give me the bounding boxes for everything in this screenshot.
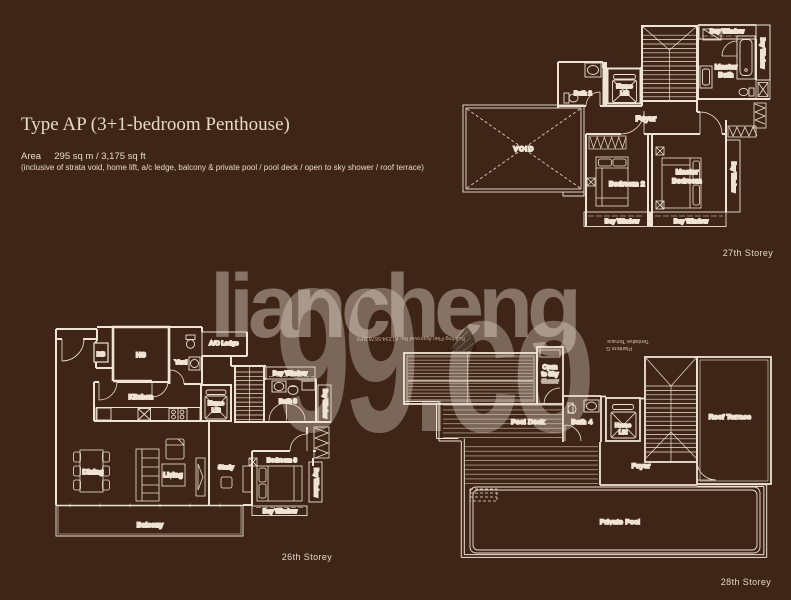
- svg-text:Bedroom 3: Bedroom 3: [267, 458, 297, 464]
- svg-text:28th Storey: 28th Storey: [721, 577, 772, 587]
- svg-text:Bay Window: Bay Window: [759, 38, 765, 69]
- svg-text:Home: Home: [208, 401, 224, 407]
- svg-text:Lift: Lift: [619, 430, 628, 436]
- svg-text:to Sky: to Sky: [542, 372, 559, 378]
- svg-text:Bay Window: Bay Window: [605, 219, 640, 225]
- svg-text:DB: DB: [97, 352, 105, 358]
- svg-text:Bedroom 2: Bedroom 2: [609, 181, 645, 188]
- svg-text:Open: Open: [543, 365, 558, 371]
- svg-text:Bay Window: Bay Window: [273, 371, 308, 377]
- svg-text:HS: HS: [136, 352, 146, 359]
- svg-text:Bay Window: Bay Window: [322, 389, 328, 418]
- svg-text:Balcony: Balcony: [137, 522, 164, 529]
- svg-text:(inclusive of strata void, hom: (inclusive of strata void, home lift, a/…: [21, 163, 424, 172]
- svg-text:Kitchen: Kitchen: [129, 394, 154, 401]
- svg-text:Yard: Yard: [175, 360, 188, 366]
- svg-text:Building Plan Approval No: A12: Building Plan Approval No: A1234-5678 BP…: [357, 335, 465, 341]
- svg-text:VOID: VOID: [514, 146, 535, 153]
- svg-text:Bath 4: Bath 4: [571, 419, 592, 426]
- svg-text:26th Storey: 26th Storey: [282, 552, 333, 562]
- svg-text:Pool Deck: Pool Deck: [511, 419, 545, 426]
- svg-text:Study: Study: [218, 465, 234, 471]
- svg-text:Private Pool: Private Pool: [600, 519, 640, 526]
- svg-text:Bedroom: Bedroom: [672, 178, 702, 185]
- svg-text:A/C Ledge: A/C Ledge: [209, 341, 238, 347]
- svg-text:Living: Living: [163, 472, 183, 479]
- svg-text:Foyer: Foyer: [636, 114, 657, 123]
- svg-text:Tentative Terrace: Tentative Terrace: [607, 338, 649, 344]
- svg-text:Bay Window: Bay Window: [674, 219, 709, 225]
- svg-text:Master: Master: [676, 169, 699, 176]
- svg-text:Bay Window: Bay Window: [710, 29, 745, 35]
- svg-text:Lift: Lift: [212, 408, 221, 414]
- svg-text:Master: Master: [715, 64, 738, 71]
- svg-text:Home: Home: [615, 423, 631, 429]
- svg-text:Bay Window: Bay Window: [730, 162, 736, 193]
- svg-text:Dining: Dining: [82, 469, 103, 476]
- svg-text:Bath 3: Bath 3: [279, 399, 297, 405]
- svg-text:27th Storey: 27th Storey: [723, 248, 774, 258]
- svg-text:Shower: Shower: [542, 379, 559, 385]
- svg-text:Bath 2: Bath 2: [574, 91, 592, 97]
- svg-text:Area 295 sq m / 3,175 sq f: Area 295 sq m / 3,175 sq ft: [21, 151, 146, 162]
- svg-text:Lift: Lift: [620, 91, 629, 97]
- svg-text:Planters G: Planters G: [606, 345, 632, 351]
- svg-text:Bath: Bath: [718, 72, 733, 79]
- svg-text:Home: Home: [616, 84, 632, 90]
- svg-text:Foyer: Foyer: [632, 463, 651, 470]
- svg-text:Roof Terrace: Roof Terrace: [709, 414, 751, 421]
- svg-text:Bay Window: Bay Window: [263, 509, 298, 515]
- svg-text:Bay Window: Bay Window: [313, 468, 319, 497]
- svg-text:Type AP (3+1-bedroom Penthouse: Type AP (3+1-bedroom Penthouse): [21, 114, 290, 135]
